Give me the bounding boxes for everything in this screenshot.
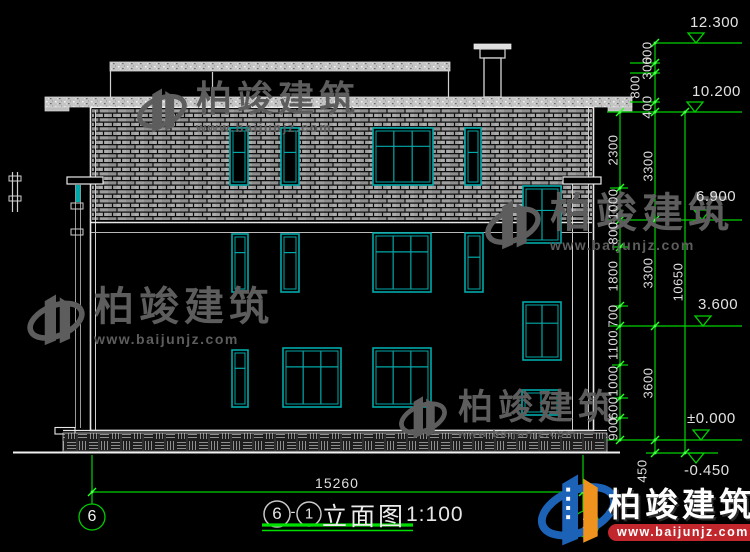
level-label-ground: ±0.000 — [687, 410, 736, 427]
chimney — [474, 44, 511, 97]
title-axis-separator: - — [291, 504, 296, 521]
dim-fine-600: 600 — [606, 396, 621, 419]
watermark-top: 柏竣建筑 www.baijunjz.com — [136, 80, 360, 136]
watermark-brand-text: 柏竣建筑 — [94, 286, 274, 328]
watermark-bottom: 柏竣建筑 www.baijunjz.com — [396, 390, 618, 440]
title-scale: 1:100 — [406, 503, 464, 527]
eave-right-fascia — [608, 107, 632, 111]
watermark-url-text: www.baijunjz.com — [94, 331, 274, 347]
window-3f-c — [373, 128, 433, 185]
watermark-url-text: www.baijunjz.com — [196, 120, 360, 135]
dim-fine-700: 700 — [606, 304, 621, 327]
dim-fine-900: 900 — [606, 417, 621, 440]
window-2f-a — [232, 234, 248, 292]
level-label-eave: 10.200 — [692, 83, 741, 100]
dim-floor-3600: 3600 — [641, 368, 656, 399]
level-label-floor2: 3.600 — [698, 296, 738, 313]
watermark-url-text: www.baijunjz.com — [550, 237, 734, 253]
watermark-url-text: www.baijunjz.com — [458, 428, 618, 440]
window-3f-d — [465, 128, 481, 185]
window-2f-b — [281, 234, 299, 292]
watermark-brand-text: 柏竣建筑 — [458, 390, 618, 427]
roof-deck-parapet — [110, 62, 450, 71]
level-label-roof-top: 12.300 — [690, 14, 739, 31]
window-1f-b — [283, 348, 341, 407]
watermark-logo-icon — [136, 80, 188, 136]
dim-floor-3300b: 3300 — [641, 258, 656, 289]
window-3f-b — [281, 128, 299, 185]
left-cornice-ledge — [67, 177, 103, 184]
dim-top-400: 400 — [640, 95, 655, 118]
window-2f-c — [373, 233, 431, 292]
dim-total-height: 10650 — [671, 263, 686, 302]
brand-name-text: 柏竣建筑 — [608, 488, 750, 521]
watermark-left: 柏竣建筑 www.baijunjz.com — [26, 286, 274, 348]
title-axis-a: 6 — [272, 504, 281, 524]
dim-fine-800: 800 — [606, 221, 621, 244]
dim-fine-1000a: 1000 — [606, 189, 621, 220]
elevation-drawing-canvas: 12.300 10.200 6.900 3.600 ±0.000 -0.450 … — [0, 0, 750, 552]
title-name: 立面图 — [322, 497, 406, 533]
dim-fine-1000b: 1000 — [606, 366, 621, 397]
watermark-logo-icon — [484, 192, 542, 252]
right-cornice-ledge — [563, 177, 601, 184]
dim-floor-3300a: 3300 — [641, 151, 656, 182]
eave-left-fascia — [45, 107, 69, 111]
watermark-brand-text: 柏竣建筑 — [196, 80, 360, 118]
window-2f-d — [465, 233, 483, 292]
dim-overall-width: 15260 — [315, 475, 359, 491]
dim-fine-1100: 1100 — [606, 330, 621, 360]
brand-logo-block: 柏竣建筑 www.baijunjz.com — [534, 464, 750, 552]
title-axis-b: 1 — [305, 506, 313, 523]
level-label-floor3: 6.900 — [696, 188, 736, 205]
watermark-logo-icon — [26, 286, 86, 348]
dim-fine-2300: 2300 — [606, 135, 621, 166]
window-3f-a — [230, 128, 248, 185]
grid-bubble-left-number: 6 — [88, 508, 97, 526]
watermark-logo-icon — [396, 390, 450, 440]
brand-url-badge: www.baijunjz.com — [608, 524, 750, 541]
stair-window-mid — [523, 302, 561, 360]
eave-tip-downpipe — [9, 172, 21, 212]
window-1f-a — [232, 350, 248, 407]
dim-fine-1800: 1800 — [606, 261, 621, 292]
